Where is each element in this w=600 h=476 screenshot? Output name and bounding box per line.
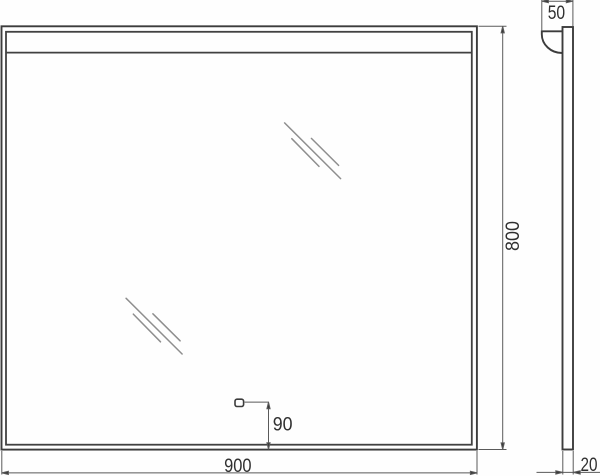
- svg-text:50: 50: [548, 3, 565, 24]
- svg-text:900: 900: [224, 456, 251, 476]
- svg-text:800: 800: [503, 221, 524, 251]
- svg-text:90: 90: [273, 414, 293, 435]
- svg-text:20: 20: [581, 455, 598, 476]
